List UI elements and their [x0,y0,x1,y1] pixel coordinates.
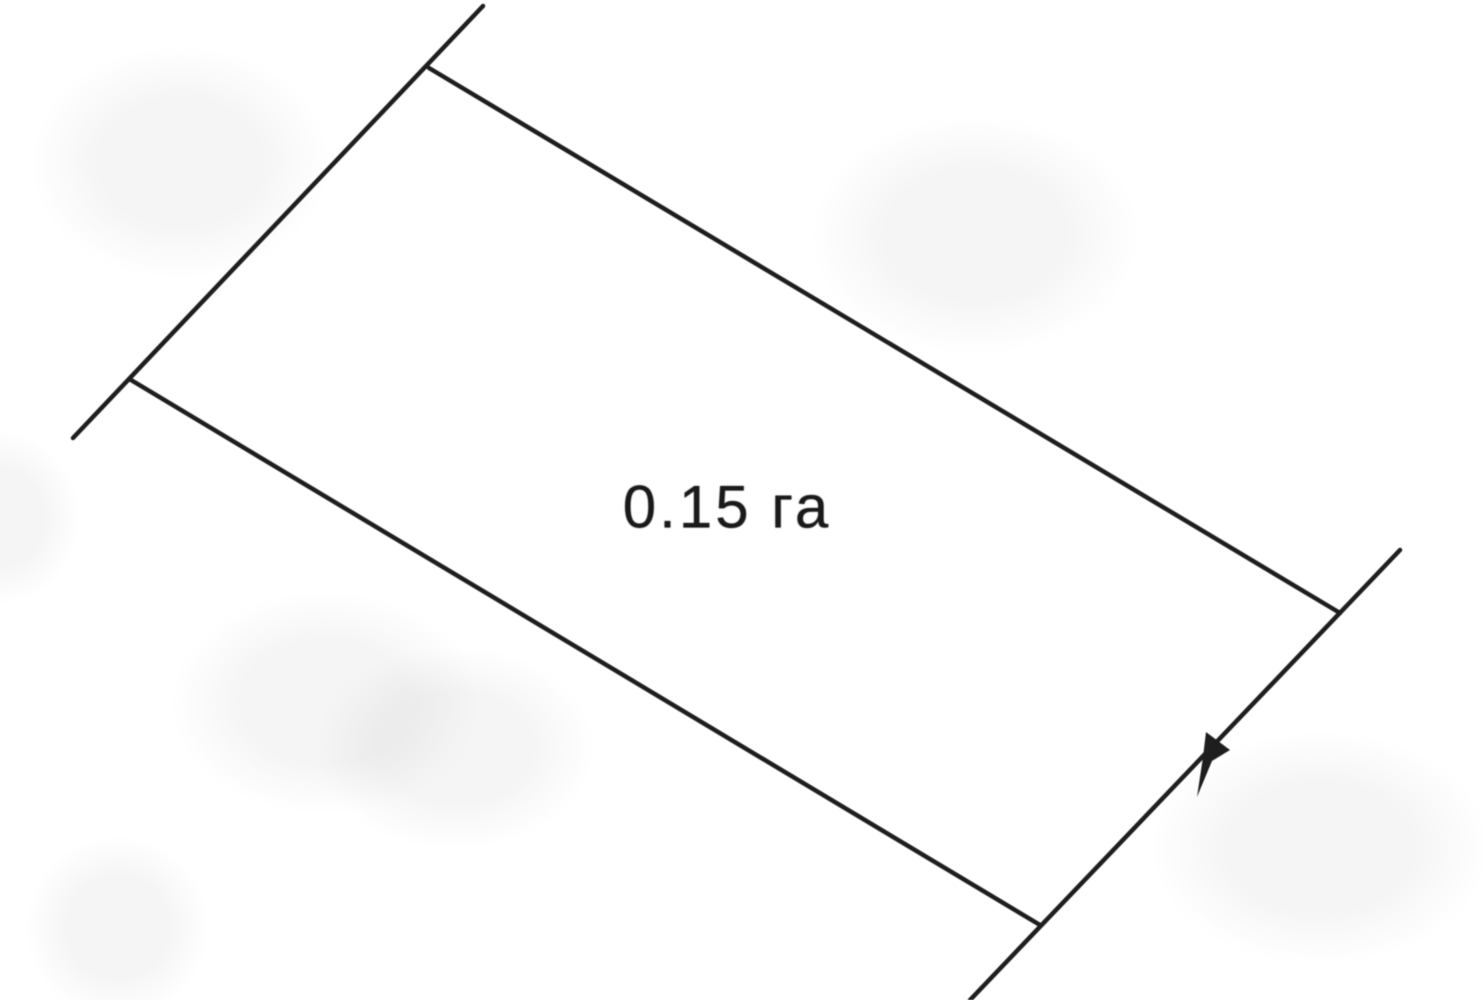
left-boundary-line [73,6,483,438]
plot-sketch-canvas: 0.15 га [0,0,1483,1000]
direction-arrowhead-icon [1197,732,1230,797]
right-boundary-line [970,550,1400,1000]
area-label: 0.15 га [623,473,831,542]
top-boundary-line [429,68,1340,613]
bottom-boundary-line [131,380,1040,925]
